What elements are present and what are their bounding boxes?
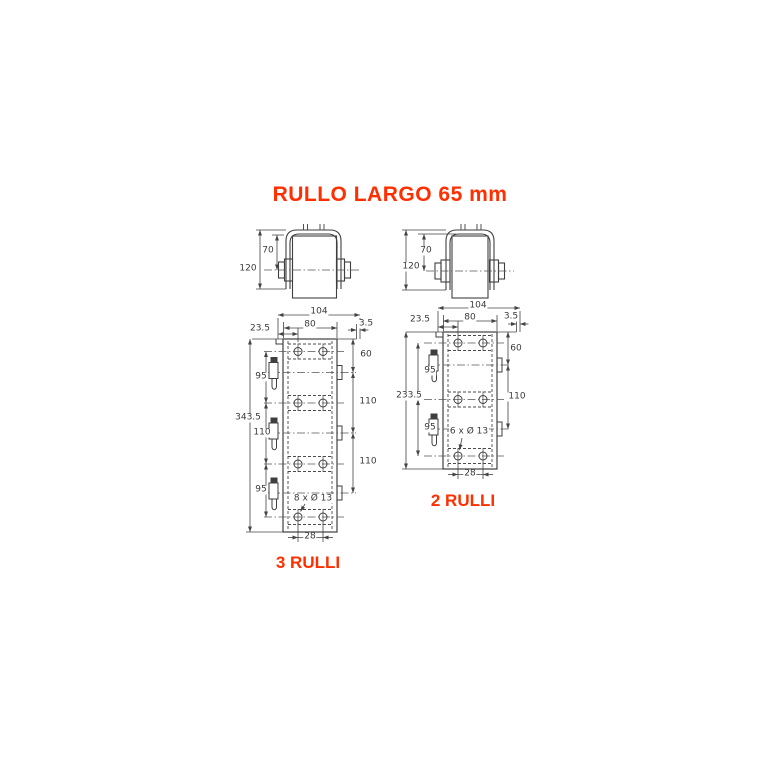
roller-front-left-dims: [256, 230, 286, 289]
dim-plate2-left-chain-0: 95: [423, 367, 436, 376]
dim-plate3-hole-spacing: 28: [303, 533, 316, 542]
dim-plate3-offset-right: 3.5: [358, 320, 374, 329]
dim-left-roller-height-axle: 70: [261, 247, 274, 256]
dim-plate2-offset-left: 23.5: [409, 316, 431, 325]
dim-left-roller-height-total: 120: [238, 265, 257, 274]
dim-plate2-hole-spacing: 28: [463, 470, 476, 479]
dim-plate3-left-chain-1: 110: [252, 429, 271, 438]
dim-plate2-offset-right: 3.5: [503, 313, 519, 322]
dim-plate2-right-chain-1: 110: [507, 393, 526, 402]
dim-right-roller-height-axle: 70: [419, 247, 432, 256]
variant-label-2-rulli: 2 RULLI: [431, 491, 495, 511]
dim-plate2-height-overall: 233.5: [395, 392, 423, 401]
dim-plate3-left-chain-0: 95: [254, 373, 267, 382]
dim-plate3-width-overall: 104: [309, 308, 328, 317]
note-plate2-holes: 6 x Ø 13: [449, 428, 489, 437]
dim-plate3-height-overall: 343.5: [234, 414, 262, 423]
dim-plate2-width-face: 80: [463, 314, 476, 323]
dim-plate3-right-chain-2: 110: [358, 458, 377, 467]
dim-right-roller-height-total: 120: [401, 263, 420, 272]
technical-drawing: [0, 0, 768, 768]
variant-label-3-rulli: 3 RULLI: [276, 553, 340, 573]
dim-plate2-width-overall: 104: [468, 302, 487, 311]
dim-plate2-left-chain-1: 95: [423, 424, 436, 433]
roller-front-right: [426, 224, 514, 298]
dim-plate3-offset-left: 23.5: [249, 325, 271, 334]
dim-plate3-left-chain-2: 95: [254, 486, 267, 495]
page-title: RULLO LARGO 65 mm: [273, 183, 508, 207]
dim-plate2-right-chain-0: 60: [509, 345, 522, 354]
note-plate3-holes: 8 x Ø 13: [293, 495, 333, 504]
dim-plate3-right-chain-1: 110: [358, 398, 377, 407]
drawing-canvas: RULLO LARGO 65 mm 120 70 120 70 104 80 2…: [0, 0, 768, 768]
dim-plate3-width-face: 80: [303, 321, 316, 330]
dim-plate3-right-chain-0: 60: [359, 351, 372, 360]
